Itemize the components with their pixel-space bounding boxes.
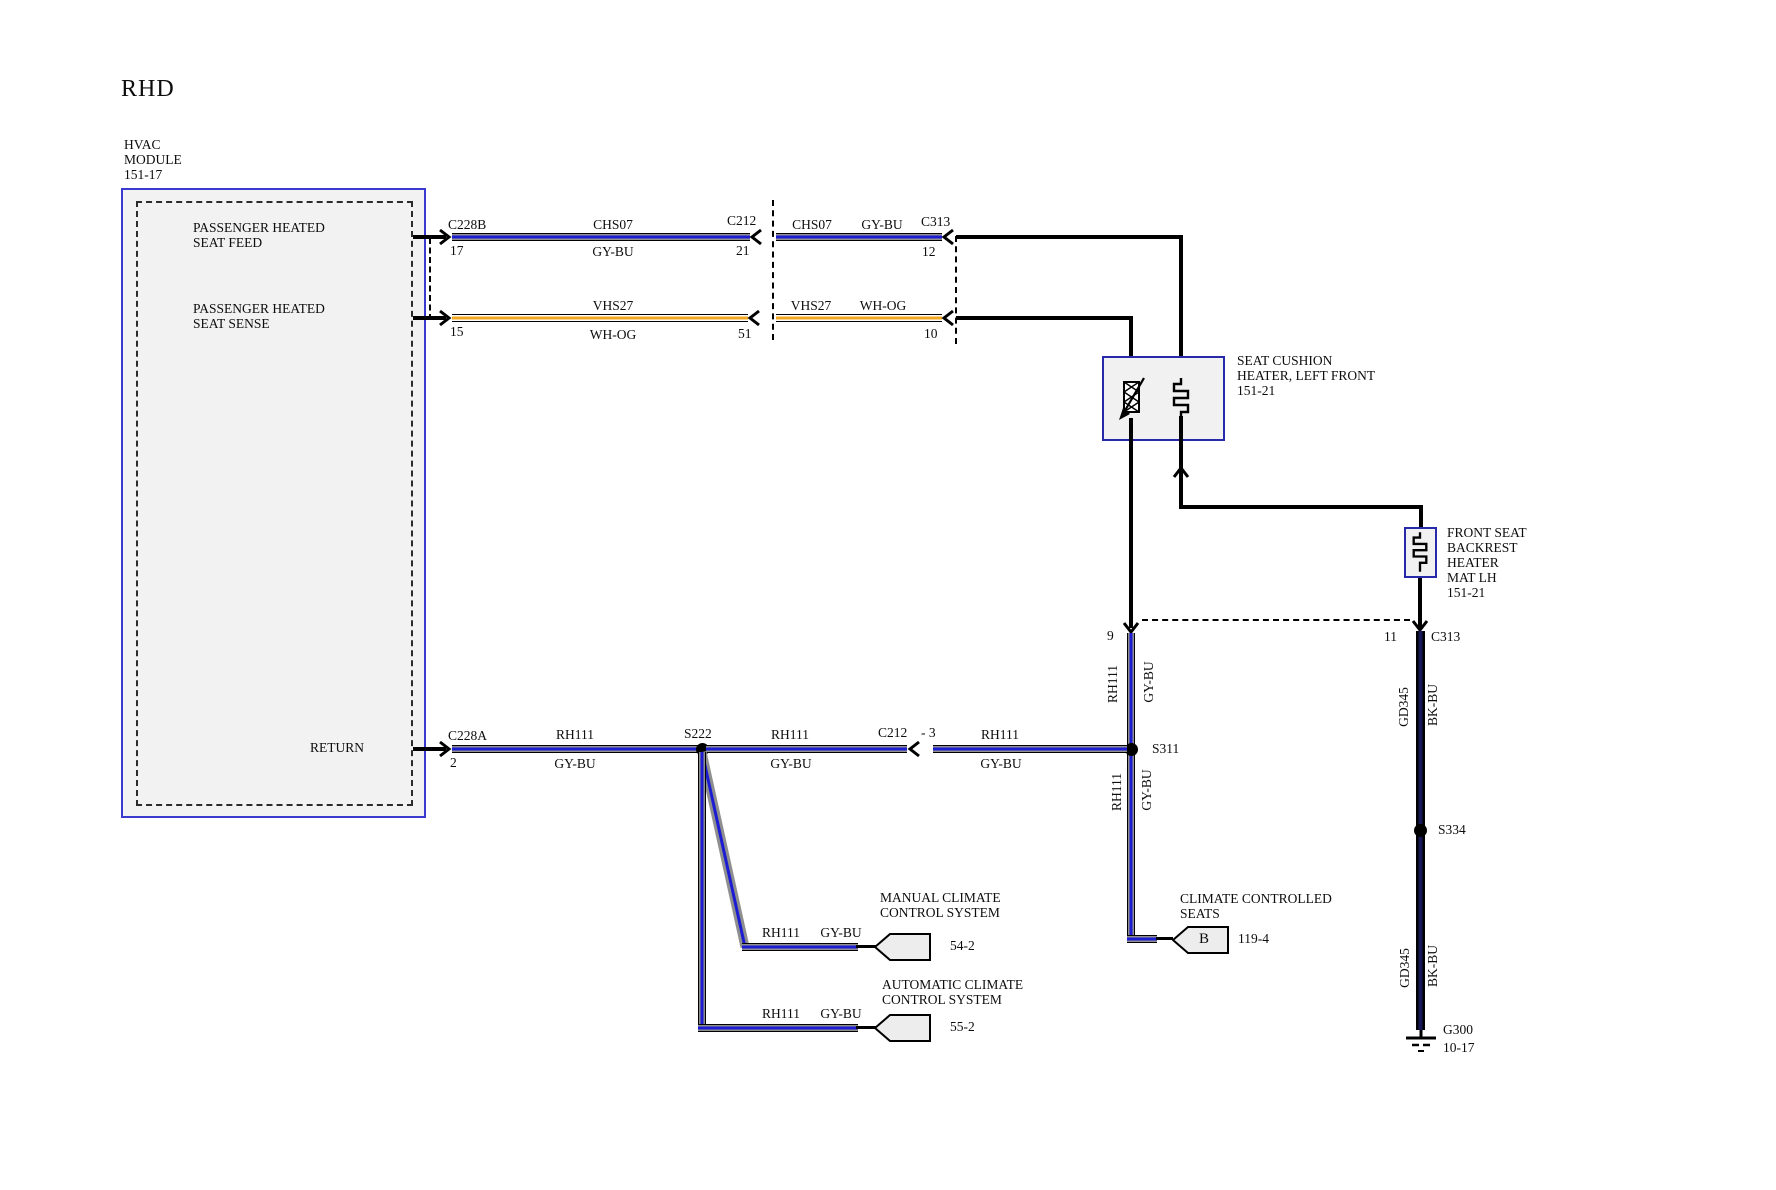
auto-branch-wire-vertical [698, 752, 706, 1032]
pin-number-9: 9 [1107, 629, 1114, 643]
wire-vhs27-seg2 [776, 314, 942, 322]
return-c212-arrow-icon [906, 740, 924, 758]
page-title: RHD [121, 76, 175, 103]
wire-color-bkbu-lower: BK-BU [1426, 945, 1440, 987]
wire-chs07-seg2 [776, 233, 942, 241]
ccs-title-line2: SEATS [1180, 907, 1220, 921]
thermistor-drop-wire [1129, 418, 1133, 628]
wire-name-vhs27-seg1: VHS27 [593, 299, 634, 313]
hvac-module-inner-dashed-box [136, 201, 413, 806]
wire-color-gybu-auto: GY-BU [820, 1007, 861, 1021]
ccs-page-ref: 119-4 [1238, 932, 1269, 946]
backrest-name-line2: BACKREST [1447, 541, 1518, 555]
pin-number-17: 17 [450, 244, 464, 258]
wire-name-rh111-auto: RH111 [762, 1007, 800, 1021]
pin-number-3: - 3 [921, 726, 936, 740]
pin-number-2: 2 [450, 756, 457, 770]
backrest-name-line4: MAT LH [1447, 571, 1497, 585]
connector-label-c228a: C228A [448, 729, 487, 743]
wire-name-rh111-seg3: RH111 [981, 728, 1019, 742]
cushion-inline-up-arrow-icon [1172, 464, 1190, 482]
manual-branch-wire-horizontal [742, 943, 858, 951]
auto-branch-wire-horizontal [698, 1024, 858, 1032]
manual-branch-flag [874, 932, 932, 967]
ground-icon [1399, 1030, 1443, 1059]
cushion-heater-name-line2: HEATER, LEFT FRONT [1237, 369, 1375, 383]
wire-name-rh111-manual: RH111 [762, 926, 800, 940]
wire-name-chs07-seg1: CHS07 [593, 218, 633, 232]
feed-c212-arrow-icon [748, 228, 766, 246]
wire-name-rh111-lower: RH111 [1110, 773, 1124, 811]
auto-branch-flag [874, 1013, 932, 1048]
wire-name-gd345-lower: GD345 [1398, 948, 1412, 988]
connector-label-c212-return: C212 [878, 726, 907, 740]
connector-c313-bottom-dashed-line [1142, 619, 1410, 621]
wire-color-vhs27-seg2: WH-OG [860, 299, 907, 313]
auto-title-line1: AUTOMATIC CLIMATE [882, 978, 1023, 992]
ground-page-ref: 10-17 [1443, 1041, 1475, 1055]
wire-color-chs07-seg2: GY-BU [861, 218, 902, 232]
wire-name-vhs27-seg2: VHS27 [791, 299, 832, 313]
splice-s334-dot [1414, 824, 1427, 837]
wire-chs07-seg1 [452, 233, 750, 241]
backrest-top-wire [1419, 507, 1423, 529]
backrest-ref: 151-21 [1447, 586, 1485, 600]
hvac-module-ref: 151-17 [124, 168, 162, 182]
hvac-module-name-line1: HVAC [124, 138, 161, 152]
pin-number-21: 21 [736, 244, 750, 258]
pin-number-51: 51 [738, 327, 752, 341]
sense-pin-label-line2: SEAT SENSE [193, 317, 270, 331]
wire-rh111-return-seg3 [933, 745, 1127, 753]
ccs-branch-wire-horizontal [1127, 935, 1157, 943]
ccs-flag-link-wire [1156, 937, 1173, 940]
wire-rh111-return-seg1 [452, 745, 706, 753]
connector-label-c228b: C228B [448, 218, 486, 232]
sense-black-wire-horizontal [956, 316, 1133, 320]
cushion-heater-ref: 151-21 [1237, 384, 1275, 398]
pin-number-12: 12 [922, 245, 936, 259]
wire-color-gybu-seg2: GY-BU [770, 757, 811, 771]
wire-name-gd345-upper: GD345 [1397, 687, 1411, 727]
manual-title-line1: MANUAL CLIMATE [880, 891, 1001, 905]
wire-name-rh111-seg2: RH111 [771, 728, 809, 742]
wire-name-rh111-upper: RH111 [1106, 665, 1120, 703]
cushion-to-backrest-wire-horizontal [1179, 505, 1423, 509]
auto-title-line2: CONTROL SYSTEM [882, 993, 1002, 1007]
wire-color-chs07-seg1: GY-BU [592, 245, 633, 259]
wire-vhs27-seg1 [452, 314, 748, 322]
wire-color-bkbu-upper: BK-BU [1426, 684, 1440, 726]
wire-rh111-vertical [1127, 633, 1135, 943]
splice-label-s334: S334 [1438, 823, 1466, 837]
manual-flag-link-wire [856, 945, 876, 948]
wire-color-gybu-seg3: GY-BU [980, 757, 1021, 771]
return-pin-label: RETURN [310, 741, 364, 755]
sense-c212-arrow-icon [746, 309, 764, 327]
splice-label-s311: S311 [1152, 742, 1179, 756]
ccs-title-line1: CLIMATE CONTROLLED [1180, 892, 1332, 906]
feed-pin-label-line1: PASSENGER HEATED [193, 221, 325, 235]
manual-page-ref: 54-2 [950, 939, 975, 953]
splice-label-s222: S222 [684, 727, 712, 741]
connector-c313-dashed-line [955, 236, 957, 344]
wire-name-chs07-seg2: CHS07 [792, 218, 832, 232]
connector-label-c212-feed: C212 [727, 214, 756, 228]
wire-color-gybu-lower: GY-BU [1140, 769, 1154, 810]
wiring-diagram: RHD HVAC MODULE 151-17 PASSENGER HEATED … [0, 0, 1776, 1190]
auto-flag-link-wire [856, 1026, 876, 1029]
hvac-module-name-line2: MODULE [124, 153, 182, 167]
manual-title-line2: CONTROL SYSTEM [880, 906, 1000, 920]
connector-label-c313-top: C313 [921, 215, 950, 229]
connector-c228b-dashed-line [429, 238, 431, 320]
wire-name-rh111-seg1: RH111 [556, 728, 594, 742]
auto-page-ref: 55-2 [950, 1020, 975, 1034]
wire-color-gybu-seg1: GY-BU [554, 757, 595, 771]
backrest-name-line3: HEATER [1447, 556, 1499, 570]
connector-label-c313-bottom: C313 [1431, 630, 1460, 644]
feed-black-wire-horizontal [956, 235, 1183, 239]
pin-number-10: 10 [924, 327, 938, 341]
wire-color-vhs27-seg1: WH-OG [590, 328, 637, 342]
wire-color-gybu-manual: GY-BU [820, 926, 861, 940]
pin-number-11: 11 [1384, 630, 1397, 644]
pin-number-15: 15 [450, 325, 464, 339]
feed-pin-label-line2: SEAT FEED [193, 236, 262, 250]
backrest-heater-element-icon [1411, 531, 1429, 578]
sense-pin-label-line1: PASSENGER HEATED [193, 302, 325, 316]
heater-element-drop-wire [1179, 416, 1183, 509]
cushion-heater-name-line1: SEAT CUSHION [1237, 354, 1332, 368]
backrest-name-line1: FRONT SEAT [1447, 526, 1527, 540]
ccs-flag-pin-letter: B [1199, 932, 1209, 946]
wire-color-gybu-upper: GY-BU [1142, 661, 1156, 702]
connector-c212-dashed-line [772, 200, 774, 340]
ground-label-g300: G300 [1443, 1023, 1473, 1037]
